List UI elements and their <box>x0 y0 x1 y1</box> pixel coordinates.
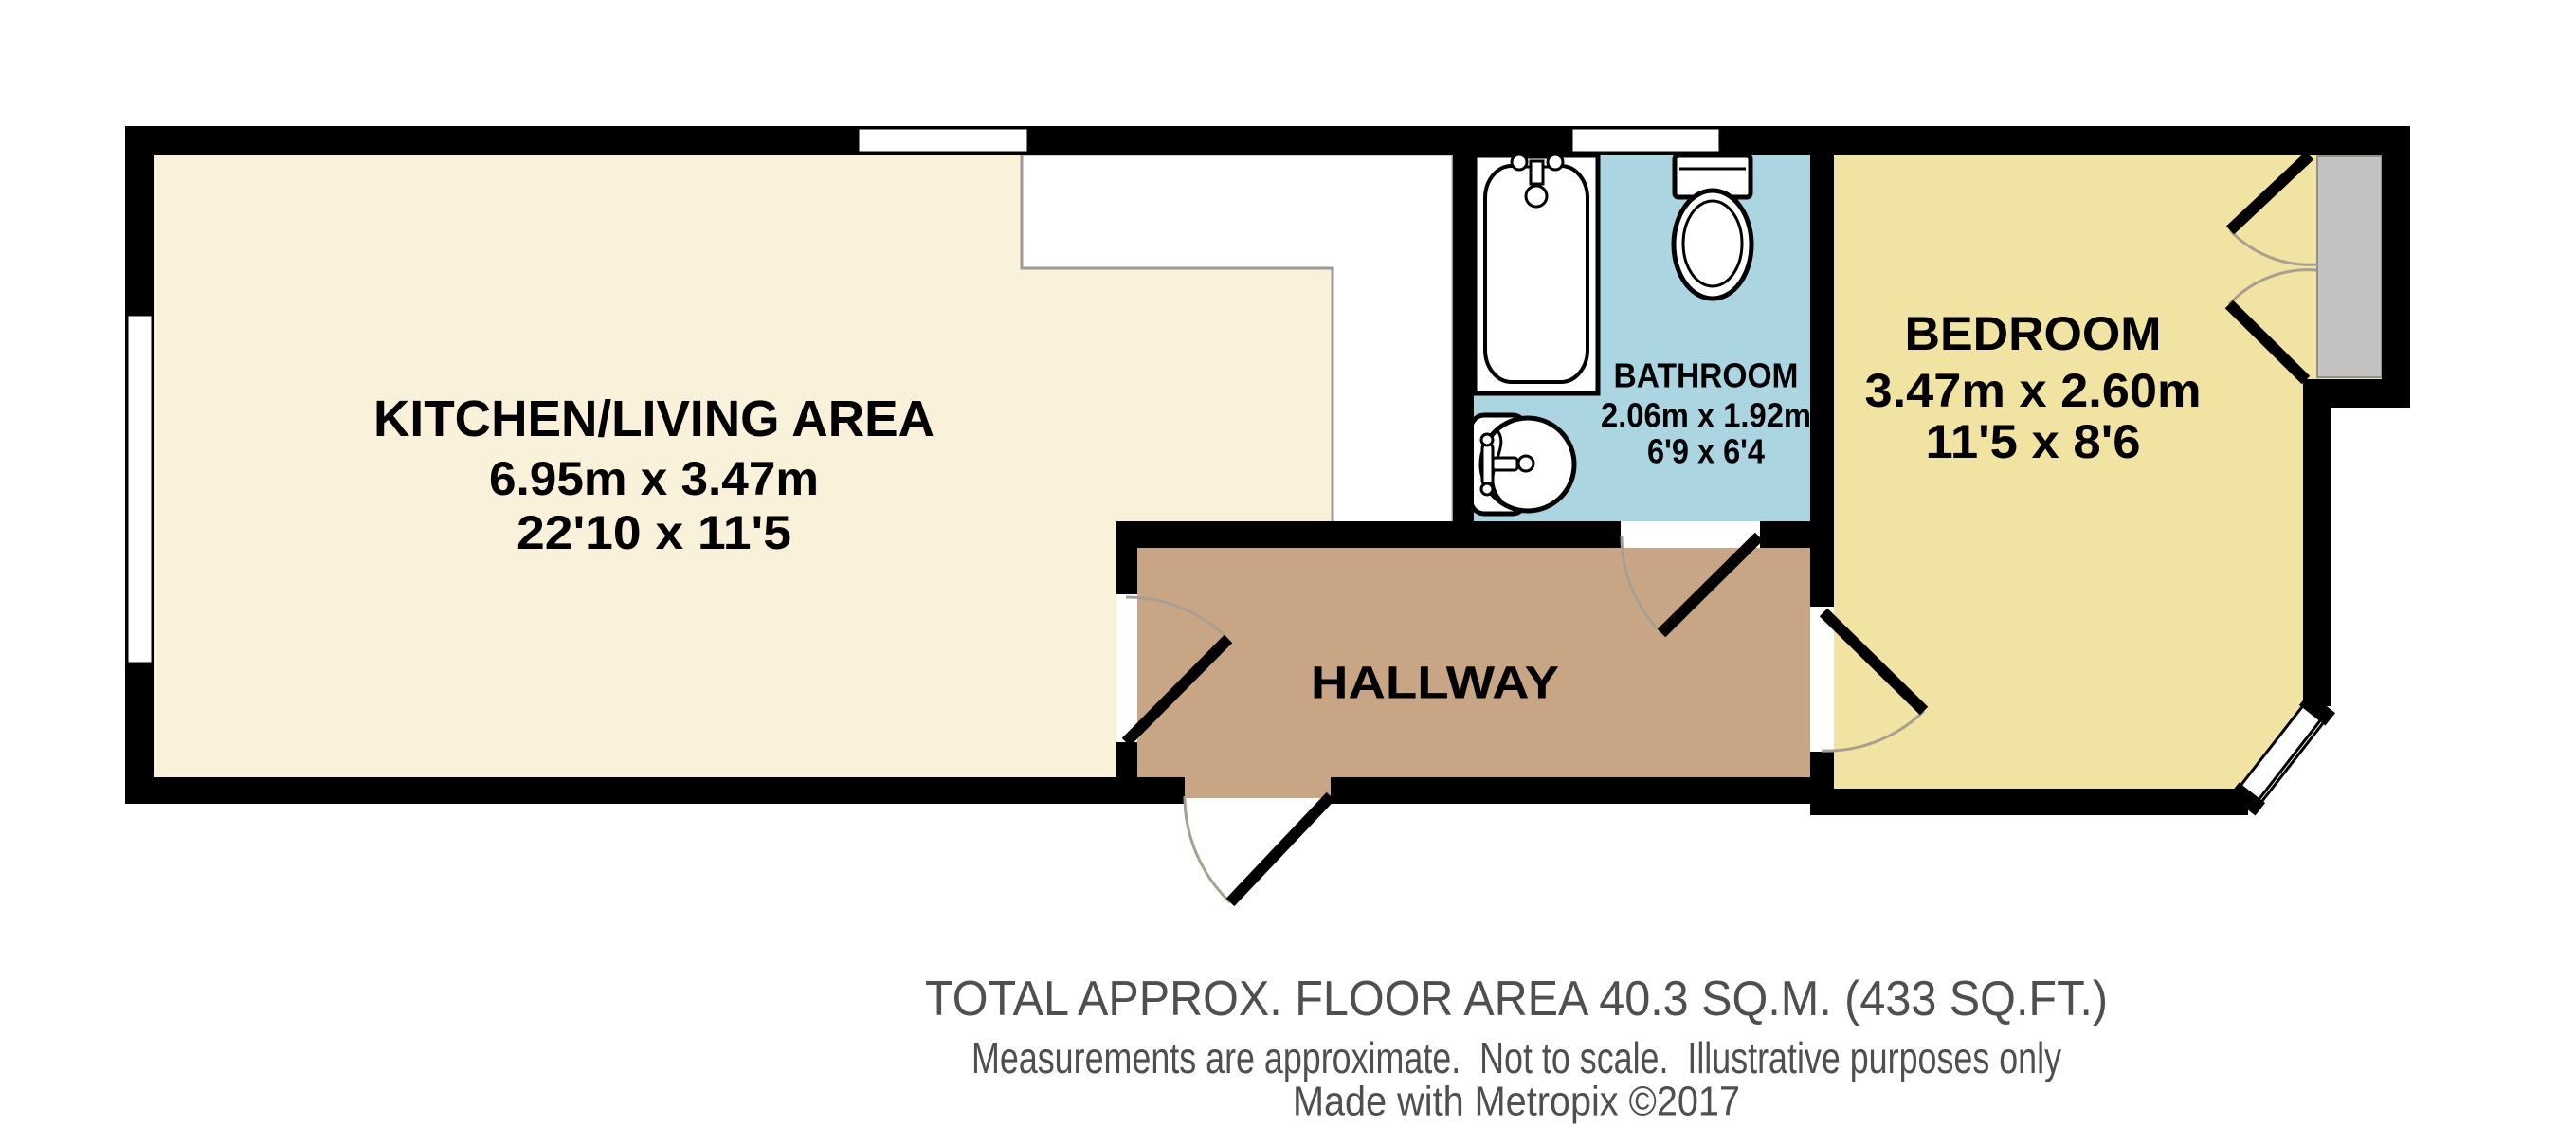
wall-right-lower <box>2303 408 2331 706</box>
kitchen-living-label: KITCHEN/LIVING AREA <box>373 391 934 447</box>
wall-right-step <box>2303 379 2410 408</box>
wall-right-upper <box>2382 126 2410 408</box>
floorplan-svg: KITCHEN/LIVING AREA 6.95m x 3.47m 22'10 … <box>0 0 2576 1127</box>
window-top-kitchen <box>858 128 1028 153</box>
bedroom-floor <box>1834 155 2382 789</box>
bedroom-label: BEDROOM <box>1905 307 2162 360</box>
entrance-threshold <box>1185 777 1331 798</box>
floorplan-page: KITCHEN/LIVING AREA 6.95m x 3.47m 22'10 … <box>0 0 2576 1127</box>
bathroom-dim-imperial: 6'9 x 6'4 <box>1647 432 1765 471</box>
bathroom-dim-metric: 2.06m x 1.92m <box>1601 396 1811 435</box>
wall-bottom-hallway <box>1331 777 1832 804</box>
wall-bedroom-bottom <box>1810 789 2248 815</box>
wall-bottom-left <box>125 777 1185 804</box>
entrance-door-leaf <box>1230 796 1331 902</box>
french-door-glass-panel <box>2317 156 2382 377</box>
footer-credit: Made with Metropix ©2017 <box>1293 1079 1740 1125</box>
wall-top <box>125 126 2410 155</box>
sink-icon <box>1471 415 1574 514</box>
entrance-door-arc <box>1185 796 1230 902</box>
bathtub-icon <box>1475 155 1598 393</box>
footer-total-area: TOTAL APPROX. FLOOR AREA 40.3 SQ.M. (433… <box>925 972 2108 1027</box>
window-top-bathroom <box>1571 128 1720 153</box>
kitchen-living-dim-imperial: 22'10 x 11'5 <box>517 506 791 559</box>
bedroom-dim-metric: 3.47m x 2.60m <box>1865 364 2202 417</box>
kitchen-living-floor-lower <box>154 523 1116 777</box>
wall-bathroom-left <box>1453 155 1474 548</box>
wall-hallway-top <box>1116 521 1621 548</box>
window-left-kitchen <box>127 315 153 663</box>
bathroom-label: BATHROOM <box>1614 356 1799 395</box>
wall-bedroom-left-lower <box>1810 752 1834 789</box>
kitchen-living-dim-metric: 6.95m x 3.47m <box>489 452 819 505</box>
wall-bedroom-left-upper <box>1810 155 1834 607</box>
toilet-icon <box>1674 155 1751 299</box>
hallway-label: HALLWAY <box>1311 659 1559 709</box>
bedroom-dim-imperial: 11'5 x 8'6 <box>1926 415 2141 468</box>
footer-disclaimer: Measurements are approximate. Not to sca… <box>971 1033 2061 1082</box>
wall-kitchen-hallway-lower <box>1116 742 1137 777</box>
